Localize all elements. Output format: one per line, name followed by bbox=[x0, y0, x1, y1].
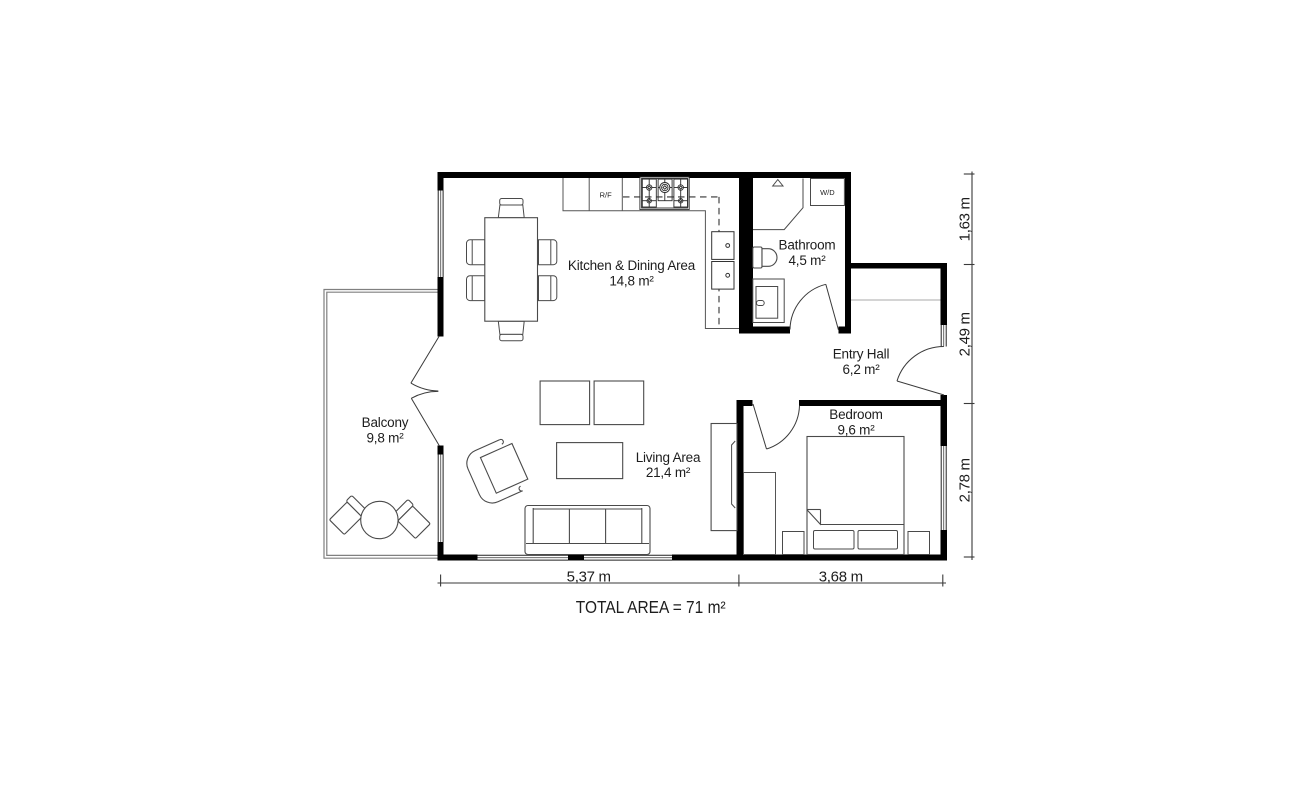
svg-text:Bedroom: Bedroom bbox=[829, 407, 882, 422]
svg-text:9,8 m²: 9,8 m² bbox=[366, 431, 404, 446]
svg-text:2,78 m: 2,78 m bbox=[957, 458, 974, 502]
svg-text:Bathroom: Bathroom bbox=[779, 238, 836, 253]
svg-text:21,4 m²: 21,4 m² bbox=[646, 465, 691, 480]
svg-text:W/D: W/D bbox=[820, 188, 835, 197]
svg-text:TOTAL AREA = 71 m²: TOTAL AREA = 71 m² bbox=[576, 598, 726, 617]
svg-text:2,49 m: 2,49 m bbox=[957, 312, 974, 356]
svg-text:Balcony: Balcony bbox=[362, 415, 409, 430]
svg-text:Entry Hall: Entry Hall bbox=[833, 347, 890, 362]
svg-text:Living Area: Living Area bbox=[636, 450, 701, 465]
svg-text:6,2 m²: 6,2 m² bbox=[842, 362, 880, 377]
svg-text:1,63 m: 1,63 m bbox=[957, 197, 974, 241]
svg-text:3,68 m: 3,68 m bbox=[819, 568, 863, 585]
svg-text:R/F: R/F bbox=[600, 191, 613, 200]
svg-text:4,5 m²: 4,5 m² bbox=[788, 253, 826, 268]
svg-text:9,6 m²: 9,6 m² bbox=[837, 423, 875, 438]
svg-text:Kitchen & Dining Area: Kitchen & Dining Area bbox=[568, 258, 696, 273]
svg-text:14,8 m²: 14,8 m² bbox=[609, 274, 654, 289]
svg-text:5,37 m: 5,37 m bbox=[567, 568, 611, 585]
